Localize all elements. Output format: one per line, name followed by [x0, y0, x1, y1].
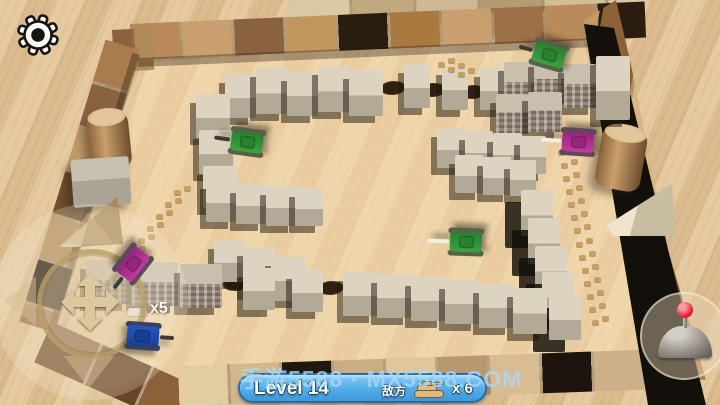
enemy-label: 敌方: [382, 382, 406, 399]
track-marks-right: [582, 268, 589, 273]
track-marks-right: [592, 320, 599, 325]
track-marks-right: [576, 185, 583, 190]
track-marks-top: [458, 63, 465, 68]
maze-block: [318, 66, 349, 112]
hud-level-bar: Level 14 敌方 x 6: [238, 373, 487, 403]
game-screen: x5 手游5588 · MX5588.COM Level 14 敌方 x 6: [0, 0, 720, 405]
track-marks-left: [156, 214, 163, 219]
dpad-up-arrowhead: [77, 273, 103, 286]
maze-block: [445, 280, 479, 324]
track-marks-left: [165, 202, 172, 207]
joystick-up-arrow[interactable]: [64, 212, 114, 244]
maze-block: [243, 268, 275, 310]
track-marks-right: [602, 316, 609, 321]
maze-block: [377, 274, 411, 318]
track-marks-right: [581, 211, 588, 216]
track-marks-top: [458, 72, 465, 77]
enemy-tank-icon: [412, 379, 450, 399]
tank-turret: [135, 329, 151, 342]
dpad-bar-vertical: [85, 284, 95, 320]
track-marks-right: [597, 290, 604, 295]
enemy-tank-green-1: [226, 125, 268, 158]
maze-block: [287, 72, 318, 116]
track-marks-right: [584, 224, 591, 229]
tank-barrel: [519, 45, 534, 53]
track-marks-left: [184, 186, 191, 191]
maze-block: [483, 157, 511, 195]
mine-with-antenna-icon: [658, 326, 712, 358]
track-marks-right: [574, 228, 581, 233]
dpad-right-arrowhead: [106, 289, 119, 315]
track-marks-right: [579, 255, 586, 260]
maze-block: [479, 284, 513, 328]
track-marks-right: [592, 264, 599, 269]
maze-block: [564, 64, 596, 108]
maze-block: [496, 94, 528, 134]
maze-block: [256, 68, 287, 114]
track-marks-right: [573, 172, 580, 177]
track-marks-left: [174, 190, 181, 195]
maze-block: [295, 188, 323, 226]
maze-block: [528, 92, 562, 132]
enemy-tank-icon-tracks: [414, 390, 444, 398]
maze-block: [411, 277, 445, 321]
track-marks-left: [157, 222, 164, 227]
track-marks-right: [589, 307, 596, 312]
track-marks-left: [166, 210, 173, 215]
maze-block: [236, 184, 266, 224]
settings-button[interactable]: [14, 8, 62, 60]
track-marks-right: [584, 281, 591, 286]
track-marks-right: [561, 163, 568, 168]
tank-barrel: [427, 239, 449, 244]
maze-block: [455, 155, 483, 193]
gear-icon: [14, 8, 62, 60]
maze-block: [343, 272, 377, 316]
track-marks-left: [175, 198, 182, 203]
track-marks-top: [468, 68, 475, 73]
level-label: Level 14: [254, 378, 329, 400]
floor-hole: [380, 80, 407, 96]
track-marks-top: [448, 58, 455, 63]
track-marks-right: [576, 242, 583, 247]
joystick-left-arrow[interactable]: [4, 276, 36, 326]
track-marks-right: [568, 202, 575, 207]
mine-antenna-ball: [677, 302, 693, 318]
player-tank-blue: [123, 321, 163, 352]
maze-block: [549, 296, 581, 340]
dpad-left-arrowhead: [61, 289, 74, 315]
maze-block: [404, 64, 430, 108]
maze-block: [596, 56, 630, 120]
enemy-tank-green-3: [447, 227, 486, 256]
track-marks-top: [448, 67, 455, 72]
track-marks-right: [571, 215, 578, 220]
enemy-count-label: x 6: [452, 380, 473, 397]
track-marks-right: [587, 294, 594, 299]
tank-turret: [571, 136, 587, 149]
track-marks-right: [578, 198, 585, 203]
track-marks-right: [589, 251, 596, 256]
dpad-down-arrowhead: [77, 318, 103, 331]
maze-block: [206, 180, 236, 222]
track-marks-right: [571, 159, 578, 164]
tank-turret: [459, 236, 474, 249]
track-marks-right: [566, 189, 573, 194]
track-marks-top: [438, 62, 445, 67]
maze-block: [513, 288, 547, 334]
maze-block: [266, 186, 296, 226]
tank-turret: [239, 135, 256, 149]
track-marks-right: [563, 176, 570, 181]
track-marks-right: [594, 277, 601, 282]
track-marks-right: [586, 238, 593, 243]
maze-block: [349, 70, 383, 116]
enemy-tank-purple-1: [558, 127, 598, 158]
cube-left: [70, 156, 131, 208]
dpad-cross-icon[interactable]: [64, 276, 116, 328]
maze-block: [292, 270, 323, 312]
fire-button[interactable]: [640, 292, 720, 380]
track-marks-right: [599, 303, 606, 308]
joystick-down-arrow[interactable]: [64, 356, 114, 388]
